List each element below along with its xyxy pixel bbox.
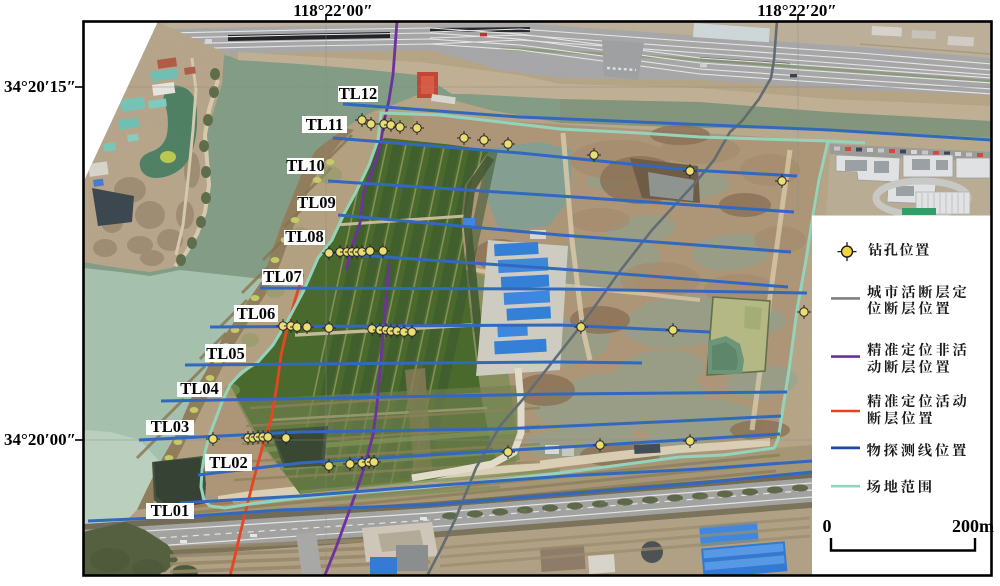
- svg-text:118°22′00″: 118°22′00″: [293, 1, 373, 20]
- svg-text:118°22′20″: 118°22′20″: [757, 1, 837, 20]
- svg-text:34°20′15″: 34°20′15″: [4, 77, 76, 96]
- svg-text:200m: 200m: [952, 516, 994, 536]
- svg-text:34°20′00″: 34°20′00″: [4, 430, 76, 449]
- svg-text:0: 0: [823, 516, 832, 536]
